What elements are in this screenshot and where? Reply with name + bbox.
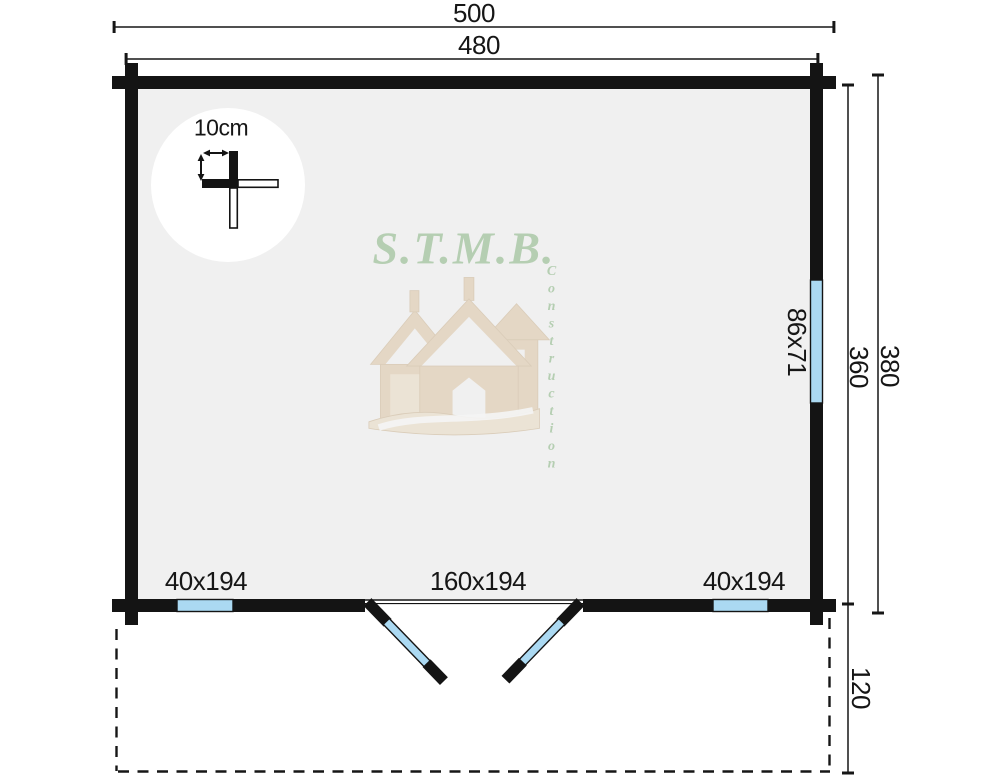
label-double-door: 160x194 [430,568,526,594]
watermark-subtitle-text: Construction [544,264,558,459]
wall-bottom-seg2 [233,599,365,612]
wall-bottom-seg3 [583,599,713,612]
label-bottom-left-window: 40x194 [165,568,247,594]
wall-bottom-seg4 [768,599,823,612]
label-bottom-right-window: 40x194 [703,568,785,594]
label-wall-thickness: 10cm [194,117,248,140]
terrace-dashed-outline [117,618,831,772]
floorplan-canvas: 500 480 360 380 120 86x71 40x194 160x194… [0,0,1000,777]
wall-left [125,76,138,612]
dim-label-terrace-depth: 120 [848,667,874,709]
wall-bottom-seg1 [125,599,177,612]
wall-top [125,76,823,89]
dim-label-inner-width: 480 [458,32,500,58]
label-side-window: 86x71 [784,308,810,376]
dim-label-outer-height: 380 [877,345,903,387]
detail-wall-thin-right [238,180,278,188]
detail-wall-thin-down [230,188,238,228]
door-opening [365,599,583,612]
detail-wall-horizontal [202,179,238,188]
bottom-right-window-glass [713,600,768,612]
dim-label-inner-height: 360 [846,346,872,388]
dim-label-outer-width: 500 [453,0,495,26]
side-window-glass [811,280,823,403]
bottom-left-window-glass [177,600,233,612]
watermark-brand-text: S.T.M.B. [372,222,555,275]
floorplan-drawing [0,0,1000,777]
